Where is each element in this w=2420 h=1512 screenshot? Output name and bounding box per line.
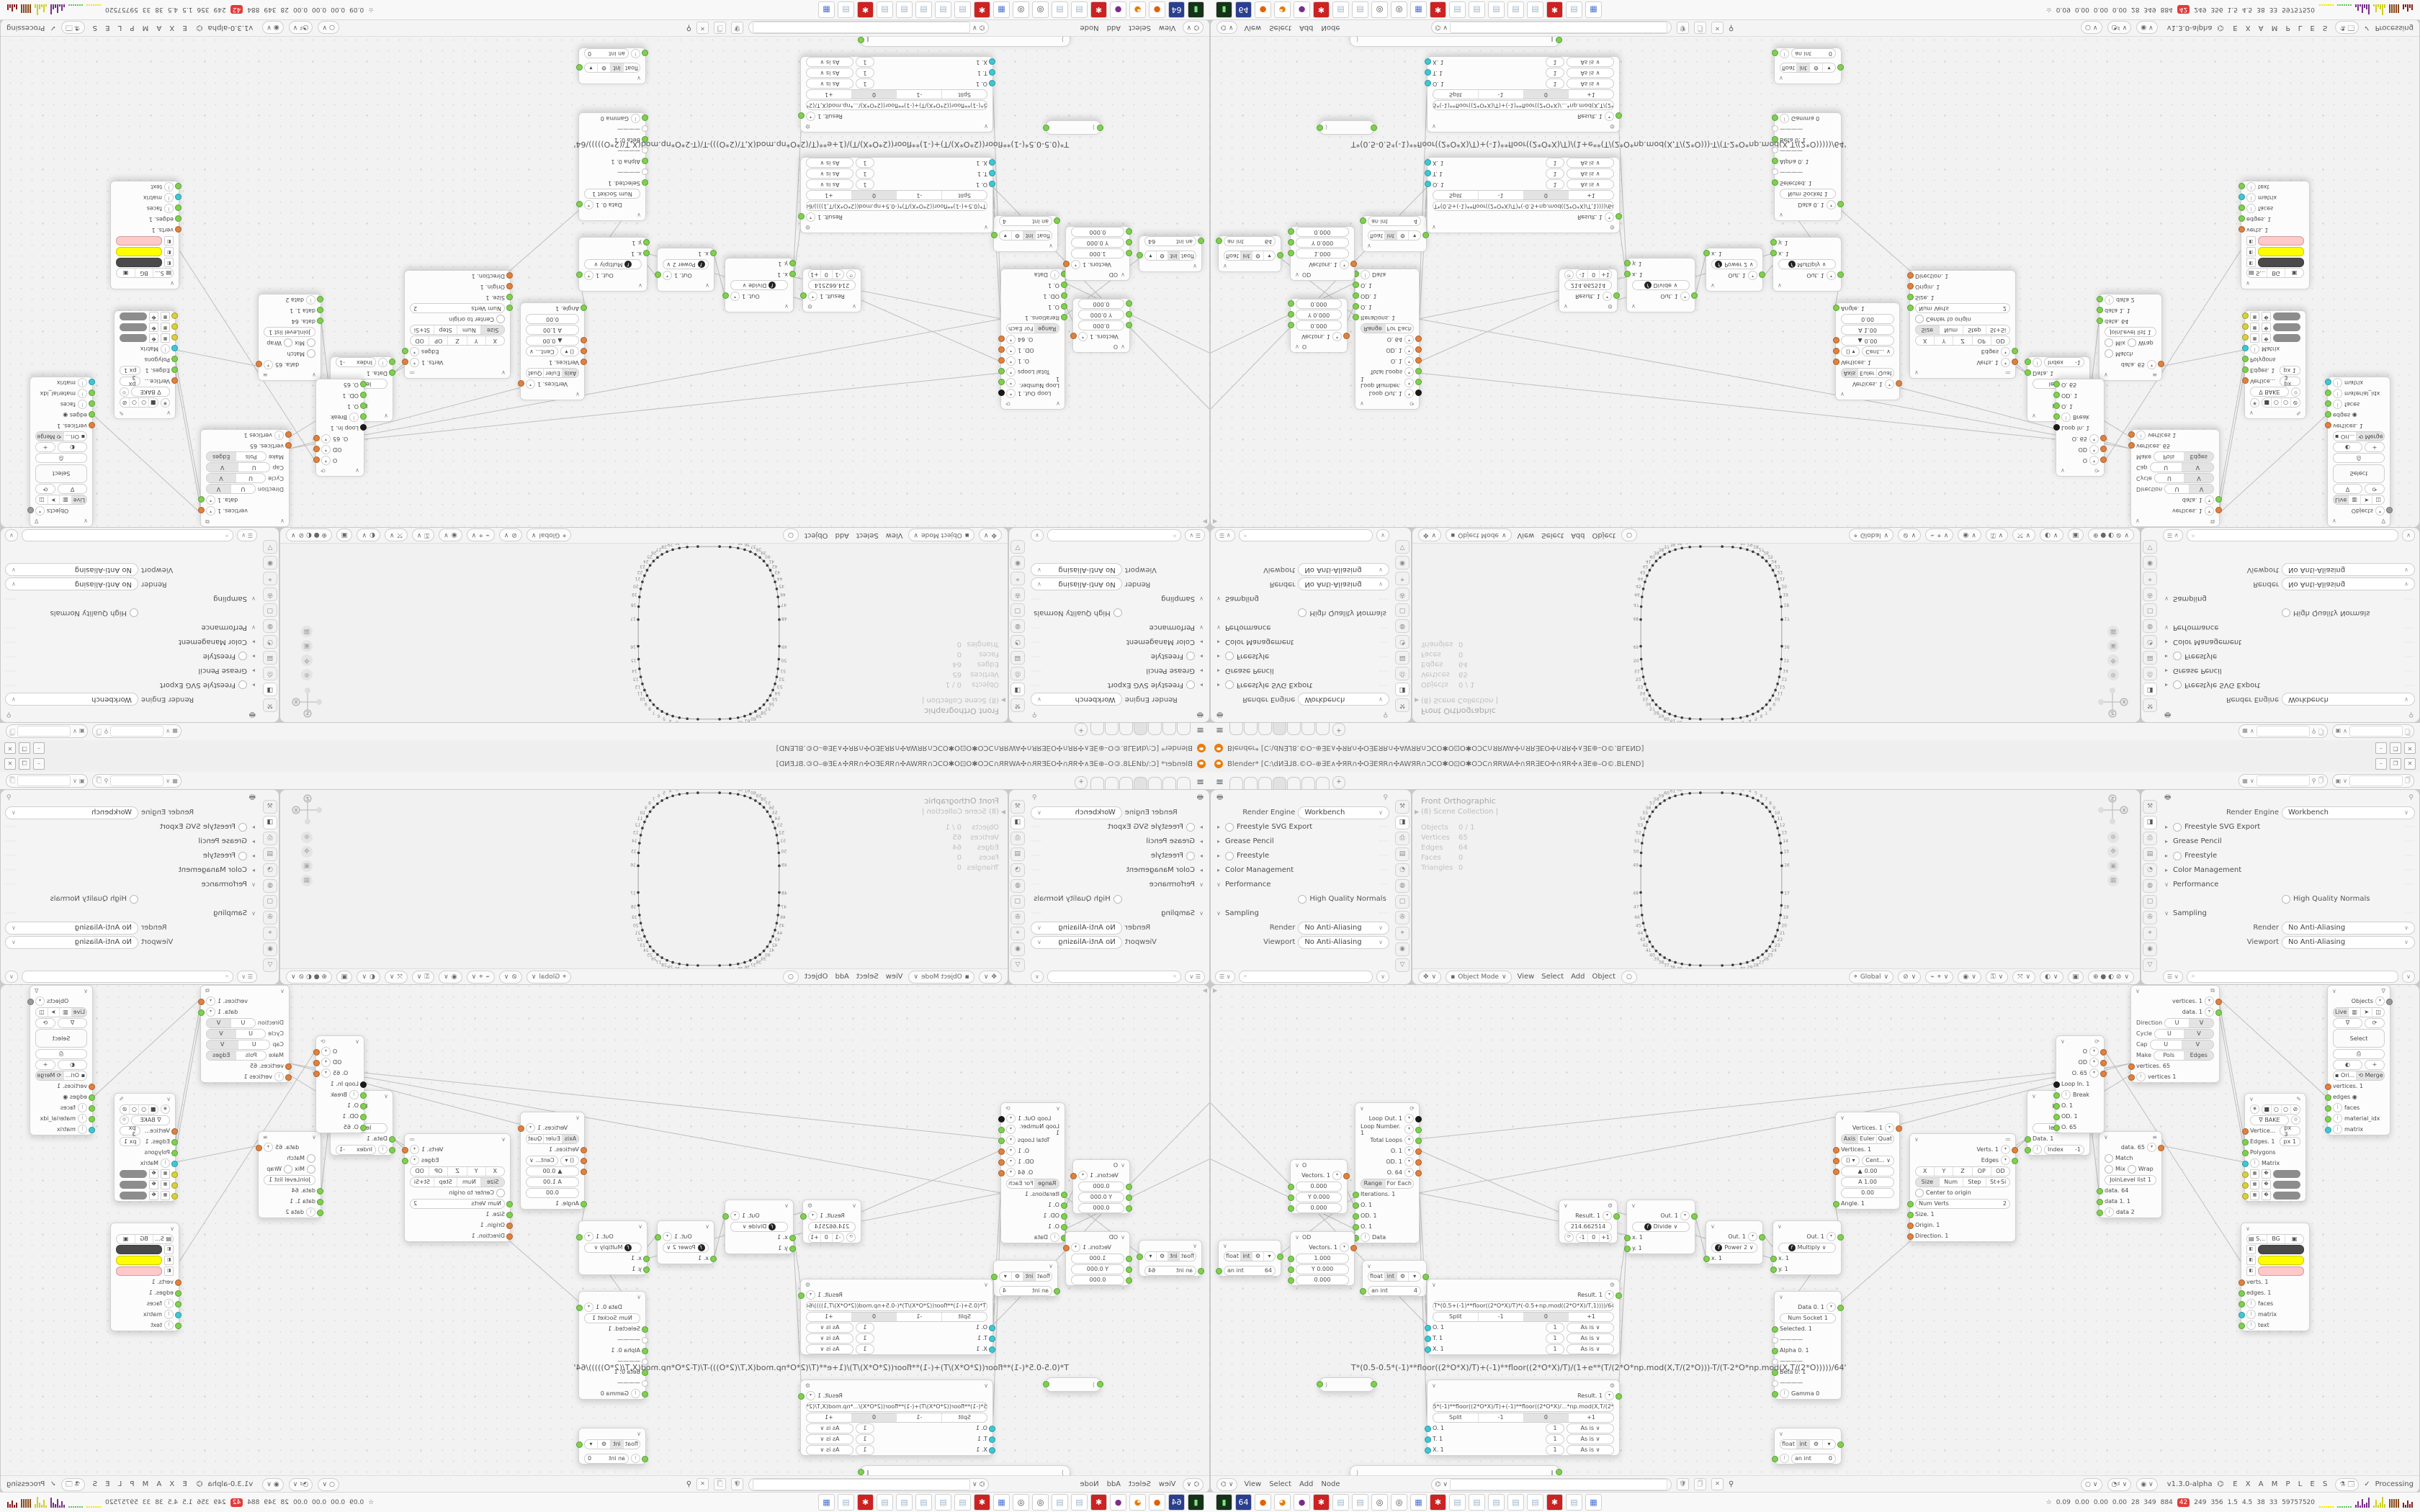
- segment-option[interactable]: int: [1241, 252, 1252, 261]
- header-toggle-button[interactable]: ○∨: [2081, 22, 2102, 35]
- ring-vertex[interactable]: [776, 834, 779, 837]
- expand-arrow-icon[interactable]: ⟩: [1780, 49, 1789, 58]
- wrap-level-field[interactable]: 1: [1546, 180, 1564, 190]
- menu-add[interactable]: Add: [1106, 24, 1122, 32]
- properties-tab-icon[interactable]: ⚒: [1395, 800, 1410, 814]
- dropdown-circle-icon[interactable]: ▾: [1680, 292, 1690, 301]
- color-swatch[interactable]: [116, 236, 162, 246]
- socket-g[interactable]: [1061, 1192, 1067, 1198]
- camera-button[interactable]: ▣: [2107, 860, 2119, 872]
- panel-title[interactable]: Freestyle: [1151, 652, 1183, 660]
- dropdown-circle-icon[interactable]: ▾: [321, 456, 331, 465]
- dropdown-circle-icon[interactable]: ▾: [1404, 1114, 1414, 1123]
- socket-k[interactable]: [360, 1081, 367, 1088]
- dropdown-circle-icon[interactable]: ▾: [1006, 1168, 1016, 1177]
- collapse-chevron-icon[interactable]: ∨: [637, 76, 641, 82]
- gadget-buttons[interactable]: ⚗🗔: [2335, 22, 2359, 35]
- socket-g[interactable]: [1061, 1202, 1067, 1209]
- option-checkbox[interactable]: [1113, 895, 1122, 904]
- color-mode-button[interactable]: ▦: [161, 1169, 170, 1179]
- render-engine-select[interactable]: Workbench∨: [1298, 806, 1389, 819]
- render-engine-select[interactable]: Workbench∨: [2282, 693, 2415, 706]
- collapse-chevron-icon[interactable]: ∨: [1295, 1234, 1299, 1241]
- color-bar[interactable]: [2273, 323, 2300, 331]
- socket-o[interactable]: [998, 336, 1005, 342]
- expand-arrow-icon[interactable]: ⟩: [349, 413, 359, 422]
- properties-tab-icon[interactable]: ✇: [1395, 588, 1410, 601]
- socket-g[interactable]: [360, 1114, 367, 1120]
- collapse-chevron-icon[interactable]: ∨: [384, 1093, 388, 1099]
- named-value-field[interactable]: Index-1: [336, 1145, 376, 1155]
- socket-g[interactable]: [1353, 292, 1359, 299]
- panel-arrow-icon[interactable]: ∨: [1198, 910, 1205, 917]
- ring-vertex[interactable]: [1642, 922, 1645, 924]
- socket-g[interactable]: [360, 413, 367, 420]
- wrap-level-field[interactable]: 1: [856, 1445, 874, 1455]
- ring-vertex[interactable]: [754, 710, 757, 713]
- segment-option[interactable]: ◫: [36, 496, 48, 505]
- node-header[interactable]: ∨: [1219, 261, 1281, 271]
- node-list-join[interactable]: ∨≡data. 65▾MatchMixWrapJoinLevel list 1d…: [2099, 1131, 2162, 1218]
- color-mode-button[interactable]: ▦: [2250, 1169, 2259, 1179]
- segment-option[interactable]: Split: [941, 1413, 987, 1422]
- socket-g[interactable]: [89, 411, 95, 418]
- node-header[interactable]: ∨: [2241, 279, 2309, 289]
- ring-vertex[interactable]: [646, 815, 649, 818]
- node-header[interactable]: ∨OD: [1291, 270, 1354, 280]
- node-input-switch[interactable]: ∨Data 0. 1▾Num Socket 1Selected. 1————Al…: [1774, 1291, 1842, 1400]
- socket-g[interactable]: [2097, 1210, 2103, 1216]
- socket-g[interactable]: [1837, 1441, 1844, 1448]
- taskbar-app-notepad[interactable]: ▤: [1071, 1, 1088, 18]
- panel-grip-icon[interactable]: ····: [5, 653, 15, 660]
- swatch-toggle[interactable]: ◧: [2246, 258, 2256, 267]
- wrap-level-field[interactable]: 1: [1546, 1344, 1564, 1354]
- display-option[interactable]: ■: [148, 1105, 158, 1114]
- node-line[interactable]: ∨≔Verts. 1▾Edges▾XYZOPODSizeNumStepSt+Si…: [1909, 1133, 2016, 1242]
- panel-checkbox[interactable]: [1186, 823, 1195, 832]
- ring-vertex[interactable]: [1780, 658, 1783, 661]
- value-field[interactable]: Y 0.000: [1296, 310, 1342, 320]
- segment-option[interactable]: ▤ S...: [2247, 269, 2267, 278]
- collapse-arrow-icon[interactable]: ⟩: [1062, 37, 1064, 43]
- color-swatch[interactable]: [116, 1256, 162, 1265]
- collapse-chevron-icon[interactable]: ∨: [1056, 401, 1060, 408]
- ring-vertex[interactable]: [1780, 852, 1783, 855]
- socket-o[interactable]: [2100, 1060, 2107, 1066]
- segment-option[interactable]: +1: [1569, 91, 1613, 99]
- socket-o[interactable]: [285, 1063, 292, 1070]
- collapse-chevron-icon[interactable]: ∨: [1711, 1223, 1715, 1230]
- panel-grip-icon[interactable]: ····: [1031, 852, 1041, 859]
- socket-o[interactable]: [171, 1128, 178, 1135]
- socket-g[interactable]: [798, 213, 805, 220]
- segment-option[interactable]: +1: [807, 91, 851, 99]
- menu-node[interactable]: Node: [1078, 24, 1100, 32]
- collapse-chevron-icon[interactable]: ∨: [1121, 1162, 1125, 1169]
- socket-g[interactable]: [1043, 1381, 1049, 1387]
- socket-g[interactable]: [402, 348, 408, 354]
- node-uv-connection[interactable]: ∨⧉vertices. 1▾data. 1▾DirectionUVCycleUV…: [2130, 429, 2220, 527]
- value-field[interactable]: A 1.00: [1841, 1177, 1894, 1187]
- value-field[interactable]: (T*(0.5+(-1)**floor((2*O*X)/T)*(-0.5+np.…: [1433, 202, 1614, 212]
- viewport-select[interactable]: No Anti-Aliasing∨: [1031, 564, 1122, 577]
- ring-vertex[interactable]: [766, 945, 769, 948]
- panel-arrow-icon[interactable]: ∨: [250, 595, 257, 602]
- footer-chevron-button[interactable]: ∨: [1031, 971, 1044, 983]
- ring-vertex[interactable]: [1680, 793, 1683, 796]
- node-uv-connection[interactable]: ∨⧉vertices. 1▾data. 1▾DirectionUVCycleUV…: [200, 985, 290, 1083]
- properties-tab-icon[interactable]: ▤: [1395, 847, 1410, 861]
- socket-g[interactable]: [2053, 1125, 2060, 1131]
- socket-g[interactable]: [1772, 50, 1778, 56]
- socket-x[interactable]: [27, 999, 34, 1005]
- ring-vertex[interactable]: [1761, 953, 1764, 956]
- socket-o[interactable]: [313, 435, 320, 441]
- node-loop-in[interactable]: ∨⟳Loop Out. 1▾Loop Number. 1▾Total Loops…: [1000, 1102, 1065, 1243]
- ring-vertex[interactable]: [1765, 950, 1768, 953]
- socket-g[interactable]: [1288, 1256, 1294, 1262]
- segment-option[interactable]: Y: [1935, 337, 1953, 346]
- properties-tab-icon[interactable]: ▽: [263, 958, 277, 972]
- node-number-0[interactable]: ∨floatint⚙▾⟩an int0: [578, 1428, 646, 1464]
- socket-k[interactable]: [2053, 1081, 2060, 1088]
- dropdown-circle-icon[interactable]: ▾: [1006, 1125, 1016, 1134]
- ring-vertex[interactable]: [1780, 904, 1783, 907]
- wrap-mode-select[interactable]: As is ∨: [806, 1344, 853, 1354]
- segment-option[interactable]: X: [485, 1167, 504, 1176]
- color-mode-button[interactable]: ▦: [2250, 1191, 2259, 1200]
- socket-g[interactable]: [1371, 125, 1377, 131]
- viewport-header-control[interactable]: ◉∨: [439, 529, 462, 542]
- ring-vertex[interactable]: [1765, 703, 1768, 706]
- socket-y[interactable]: [171, 1171, 178, 1178]
- wrap-level-field[interactable]: 1: [1546, 1445, 1564, 1455]
- ring-vertex[interactable]: [660, 710, 663, 713]
- taskbar-app-red-gear[interactable]: ✱: [1090, 1, 1107, 18]
- socket-g[interactable]: [800, 292, 807, 299]
- panel-arrow-icon[interactable]: ▸: [2163, 867, 2170, 873]
- dropdown-circle-icon[interactable]: ▾: [526, 379, 535, 389]
- socket-c[interactable]: [89, 379, 95, 385]
- panel-arrow-icon[interactable]: ▸: [1215, 852, 1222, 859]
- socket-g[interactable]: [642, 50, 648, 56]
- node-header[interactable]: ∨: [1139, 261, 1201, 271]
- dropdown-circle-icon[interactable]: ▾: [2089, 434, 2099, 444]
- segment-option[interactable]: Range: [1034, 325, 1059, 333]
- pan-button[interactable]: ✥: [301, 654, 313, 666]
- pin-icon[interactable]: ⚲: [686, 1480, 691, 1488]
- expand-arrow-icon[interactable]: ⟩: [164, 1320, 174, 1330]
- value-field[interactable]: 0.000: [1078, 1182, 1124, 1192]
- dropdown-circle-icon[interactable]: ▾: [526, 1123, 535, 1133]
- node-header[interactable]: ∨: [1363, 241, 1426, 251]
- viewlayer-selector-copy-icon[interactable]: 🗍: [9, 776, 15, 786]
- dropdown-circle-icon[interactable]: ▾: [1605, 1391, 1614, 1400]
- viewport-header-control[interactable]: ⌁⌖∨: [467, 971, 495, 984]
- collapse-chevron-icon[interactable]: ∨: [1049, 243, 1053, 250]
- panel-arrow-icon[interactable]: ▸: [1215, 667, 1222, 674]
- swatch-toggle[interactable]: ◧: [164, 1266, 174, 1276]
- node-button[interactable]: Num Socket 1: [584, 189, 640, 199]
- dropdown-circle-icon[interactable]: ▾: [410, 1156, 419, 1165]
- socket-o[interactable]: [1833, 1147, 1839, 1153]
- dropdown-circle-icon[interactable]: ▾: [1332, 332, 1342, 341]
- dropdown-circle-icon[interactable]: ▾: [1071, 260, 1080, 269]
- menu-object[interactable]: Object: [803, 973, 830, 981]
- properties-tab-icon[interactable]: ◔: [263, 635, 277, 649]
- node-number-0[interactable]: ∨floatint⚙▾⟩an int0: [1774, 1428, 1842, 1464]
- panel-title[interactable]: Sampling: [213, 909, 247, 917]
- header-toggle-button[interactable]: ○∨: [318, 22, 339, 35]
- panel-arrow-icon[interactable]: ∨: [1198, 881, 1205, 888]
- collapse-chevron-icon[interactable]: ∨: [637, 212, 641, 219]
- ring-vertex[interactable]: [1644, 827, 1646, 829]
- expand-arrow-icon[interactable]: ⟩: [78, 389, 87, 398]
- ring-vertex[interactable]: [637, 658, 640, 661]
- properties-tab-icon[interactable]: ▽: [1395, 958, 1410, 972]
- collapse-chevron-icon[interactable]: ∨: [170, 1225, 174, 1232]
- socket-g[interactable]: [1126, 311, 1132, 318]
- socket-g[interactable]: [1556, 37, 1562, 43]
- panel-arrow-icon[interactable]: ▸: [2163, 639, 2170, 645]
- expand-arrow-icon[interactable]: ⟩: [2333, 1114, 2342, 1123]
- socket-g[interactable]: [1126, 1277, 1132, 1284]
- segment-option[interactable]: OD: [1991, 337, 2009, 346]
- socket-g[interactable]: [2215, 496, 2222, 503]
- ring-vertex[interactable]: [637, 904, 640, 907]
- ring-vertex[interactable]: [640, 834, 642, 837]
- socket-o[interactable]: [506, 1223, 513, 1229]
- ring-vertex[interactable]: [1761, 556, 1764, 559]
- segment-option[interactable]: St+Si: [411, 326, 434, 335]
- node-header[interactable]: ∨: [521, 390, 584, 400]
- wrap-level-field[interactable]: 1: [856, 58, 874, 68]
- properties-tab-icon[interactable]: ⎙: [2143, 667, 2157, 680]
- color-mode-button[interactable]: �: [149, 312, 158, 321]
- segment-option[interactable]: Edges: [207, 1051, 236, 1060]
- node-header[interactable]: ∨: [579, 210, 645, 220]
- dropdown-circle-icon[interactable]: ▾: [1006, 389, 1016, 398]
- ring-vertex[interactable]: [696, 545, 699, 548]
- panel-grip-icon[interactable]: ····: [2405, 910, 2415, 917]
- socket-g[interactable]: [1415, 1127, 1422, 1133]
- panel-arrow-icon[interactable]: ▸: [1198, 682, 1205, 688]
- segment-option[interactable]: 0: [851, 1413, 897, 1422]
- menu-view[interactable]: View: [1242, 1480, 1263, 1488]
- workspace-tab[interactable]: [1090, 777, 1104, 789]
- ring-vertex[interactable]: [737, 716, 740, 719]
- ring-vertex[interactable]: [643, 935, 646, 938]
- segment-option[interactable]: Pols: [2154, 1051, 2184, 1060]
- panel-checkbox[interactable]: [1225, 681, 1234, 690]
- value-field[interactable]: Y 0.000: [1296, 1264, 1349, 1274]
- color-bar[interactable]: [120, 312, 147, 320]
- scene-selector-copy-icon[interactable]: 🗍: [96, 726, 102, 737]
- viewport-header-control[interactable]: ⤧∨: [2012, 529, 2035, 542]
- socket-c[interactable]: [1425, 1436, 1431, 1443]
- wrap-mode-select[interactable]: As is ∨: [806, 68, 853, 78]
- taskbar-app-notepad[interactable]: ▤: [1566, 1494, 1582, 1511]
- scene-selector-field[interactable]: [2257, 726, 2310, 737]
- ring-vertex[interactable]: [771, 575, 774, 577]
- viewport-header-control[interactable]: ⊕ ● ◐ ⊘∨: [2088, 971, 2134, 984]
- workspace-tab[interactable]: [1316, 723, 1330, 735]
- color-bar[interactable]: [2273, 334, 2300, 342]
- segment-option[interactable]: Quat: [1877, 369, 1894, 378]
- panel-title[interactable]: Grease Pencil: [198, 837, 247, 845]
- properties-tab-icon[interactable]: ◔: [1395, 863, 1410, 877]
- step-option[interactable]: -1: [832, 271, 843, 279]
- socket-y[interactable]: [2242, 1171, 2249, 1178]
- wrap-mode-select[interactable]: As is ∨: [1567, 58, 1614, 68]
- viewport-select[interactable]: No Anti-Aliasing∨: [5, 564, 138, 577]
- dropdown-circle-icon[interactable]: ▾: [1404, 346, 1414, 355]
- ring-vertex[interactable]: [665, 959, 668, 962]
- segment-option[interactable]: Z: [447, 337, 466, 346]
- socket-g[interactable]: [317, 1188, 323, 1194]
- properties-tab-icon[interactable]: ⌖: [263, 927, 277, 940]
- segment-option[interactable]: Step: [434, 326, 457, 335]
- collapse-chevron-icon[interactable]: ∨: [1193, 1243, 1197, 1249]
- ring-vertex[interactable]: [1699, 545, 1702, 548]
- wrap-mode-select[interactable]: As is ∨: [806, 1323, 853, 1333]
- dropdown-circle-icon[interactable]: ▾: [321, 1058, 331, 1067]
- socket-g[interactable]: [1837, 201, 1844, 207]
- socket-g[interactable]: [1288, 228, 1294, 235]
- properties-tab-icon[interactable]: ▢: [263, 895, 277, 909]
- properties-tab-icon[interactable]: ◉: [1395, 942, 1410, 956]
- copy-button[interactable]: 🗍: [714, 22, 726, 34]
- properties-tab-icon[interactable]: ▽: [2143, 958, 2157, 972]
- socket-g[interactable]: [1061, 292, 1067, 299]
- node-header[interactable]: ∨: [111, 1223, 179, 1233]
- socket-o[interactable]: [1343, 1173, 1350, 1179]
- collapse-chevron-icon[interactable]: ∨: [784, 304, 789, 310]
- wrap-level-field[interactable]: 1: [1546, 58, 1564, 68]
- dropdown-circle-icon[interactable]: ▾: [410, 358, 419, 367]
- ring-vertex[interactable]: [665, 550, 668, 553]
- socket-g[interactable]: [2215, 1009, 2222, 1016]
- taskbar-app-red-gear[interactable]: ✱: [974, 1, 990, 18]
- collapse-chevron-icon[interactable]: ∨: [637, 1294, 641, 1300]
- taskbar-app-terminal[interactable]: ▮: [1188, 1, 1204, 18]
- value-field[interactable]: Y 0.000: [1071, 1264, 1124, 1274]
- function-select[interactable]: f Multiply ∨: [1778, 1243, 1836, 1253]
- ring-vertex[interactable]: [776, 914, 779, 917]
- pin-icon[interactable]: ⚲: [686, 24, 691, 32]
- ring-vertex[interactable]: [1731, 963, 1734, 966]
- wrap-mode-select[interactable]: As is ∨: [806, 79, 853, 89]
- socket-g[interactable]: [642, 1391, 648, 1398]
- socket-g[interactable]: [1277, 252, 1283, 258]
- dropdown-circle-icon[interactable]: ▾: [206, 495, 215, 505]
- ring-vertex[interactable]: [637, 645, 640, 648]
- socket-g[interactable]: [1772, 1348, 1778, 1354]
- dropdown-circle-icon[interactable]: ▾: [1071, 1243, 1080, 1252]
- segment-option[interactable]: Z: [1953, 1167, 1972, 1176]
- function-select[interactable]: f Multiply ∨: [1778, 260, 1836, 270]
- expand-arrow-icon[interactable]: ⟩: [2246, 204, 2256, 213]
- value-field[interactable]: 0.00: [1841, 315, 1894, 325]
- taskbar-app-red-gear[interactable]: ✱: [1430, 1494, 1446, 1511]
- segment-option[interactable]: ▾: [1264, 252, 1275, 261]
- panel-checkbox[interactable]: [238, 823, 247, 832]
- dropdown-circle-icon[interactable]: ▾: [806, 1290, 815, 1300]
- workspace-tab[interactable]: [1258, 777, 1272, 789]
- socket-k[interactable]: [998, 390, 1005, 396]
- ring-vertex[interactable]: [1739, 963, 1742, 966]
- panel-grip-icon[interactable]: ····: [1031, 595, 1041, 602]
- socket-g[interactable]: [1837, 1234, 1844, 1241]
- socket-g[interactable]: [2238, 1323, 2245, 1329]
- pixel-size-field[interactable]: px 3: [120, 377, 140, 386]
- socket-g[interactable]: [2325, 390, 2331, 396]
- ring-vertex[interactable]: [729, 963, 732, 966]
- process-label[interactable]: Processing: [6, 24, 45, 32]
- socket-g[interactable]: [1907, 305, 1914, 311]
- panel-grip-icon[interactable]: ····: [2405, 838, 2415, 845]
- gadget-icon[interactable]: 🗔: [66, 22, 73, 34]
- stepper-icon[interactable]: ▲: [557, 1168, 562, 1174]
- ring-vertex[interactable]: [686, 963, 689, 966]
- panel-title[interactable]: Freestyle SVG Export: [160, 823, 236, 831]
- ring-vertex[interactable]: [641, 580, 644, 583]
- viewport-select[interactable]: No Anti-Aliasing∨: [5, 936, 138, 949]
- taskbar-app-notepad[interactable]: ▤: [1352, 1494, 1368, 1511]
- value-field[interactable]: Y 0.000: [1078, 310, 1124, 320]
- properties-tab-icon[interactable]: ◔: [263, 863, 277, 877]
- ring-vertex[interactable]: [1757, 553, 1760, 556]
- socket-c[interactable]: [989, 1336, 995, 1342]
- node-loop-in[interactable]: ∨⟳Loop Out. 1▾Loop Number. 1▾Total Loops…: [1355, 269, 1420, 410]
- ring-vertex[interactable]: [1776, 683, 1779, 685]
- value-field[interactable]: 0.00: [526, 315, 579, 325]
- ring-vertex[interactable]: [1663, 799, 1666, 802]
- node-editor-type-button[interactable]: ⌬∨: [1216, 1478, 1237, 1491]
- socket-y[interactable]: [171, 334, 178, 341]
- panel-checkbox[interactable]: [2173, 681, 2182, 690]
- segment-option[interactable]: int: [1797, 64, 1810, 73]
- tree-selector[interactable]: ⌬∨: [748, 1478, 989, 1491]
- socket-c[interactable]: [175, 1312, 181, 1318]
- collapse-chevron-icon[interactable]: ∨: [2061, 468, 2065, 474]
- dropdown-circle-icon[interactable]: ▾: [808, 292, 817, 301]
- color-swatch[interactable]: [2258, 1256, 2304, 1265]
- node-header[interactable]: ∨: [579, 1221, 647, 1231]
- socket-c[interactable]: [989, 1436, 995, 1443]
- segment-option[interactable]: V: [207, 1030, 236, 1038]
- socket-g[interactable]: [2242, 356, 2249, 362]
- panel-grip-icon[interactable]: ····: [5, 910, 15, 917]
- function-select[interactable]: f Multiply ∨: [584, 260, 642, 270]
- viewport-header-control[interactable]: ⌁⌖∨: [467, 529, 495, 542]
- step-option[interactable]: -1: [1577, 1233, 1588, 1242]
- dropdown-circle-icon[interactable]: ▾: [2001, 1145, 2010, 1154]
- socket-g[interactable]: [89, 1094, 95, 1101]
- dropdown-circle-icon[interactable]: ▾: [1605, 1290, 1614, 1300]
- node-header[interactable]: ∨: [725, 302, 793, 312]
- node-math-divide[interactable]: ∨Out. 1▾f Divide ∨x. 1y. 1: [725, 1200, 794, 1254]
- panel-checkbox[interactable]: [1186, 652, 1195, 661]
- ring-vertex[interactable]: [1769, 564, 1772, 567]
- dropdown-circle-icon[interactable]: ▾: [1827, 200, 1836, 210]
- dropdown-circle-icon[interactable]: ▾: [1404, 1135, 1414, 1145]
- expand-arrow-icon[interactable]: ⟩: [164, 182, 174, 192]
- panel-arrow-icon[interactable]: ▸: [250, 653, 257, 660]
- socket-g[interactable]: [858, 37, 864, 43]
- socket-o[interactable]: [256, 361, 262, 367]
